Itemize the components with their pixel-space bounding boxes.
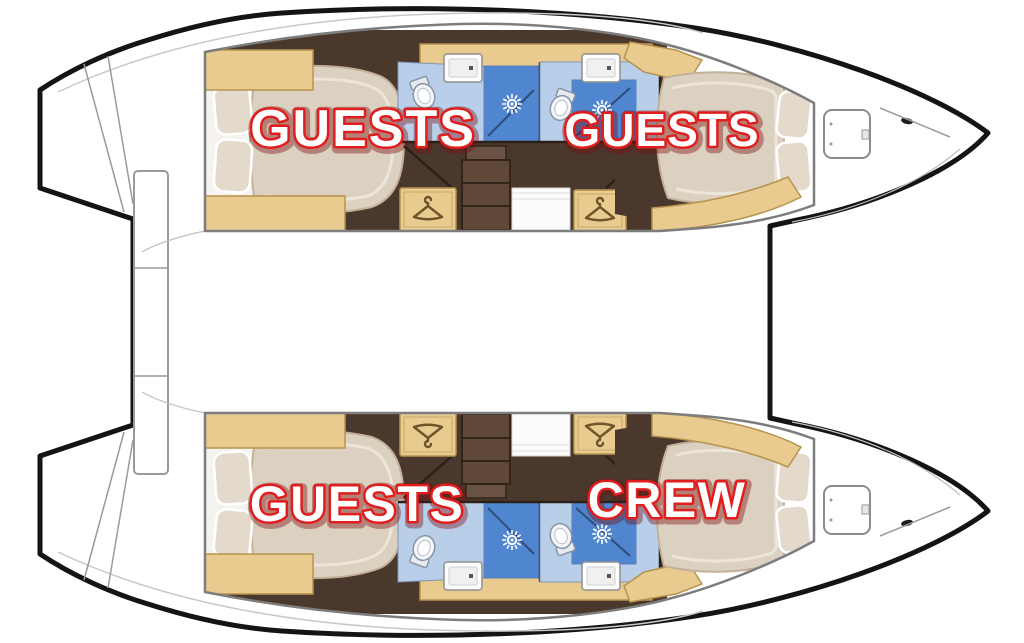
catamaran-floor-plan: GUESTS GUESTS GUESTS GUESTS GUESTS GUEST…: [0, 0, 1024, 643]
floor-plan-canvas: GUESTS GUESTS GUESTS GUESTS GUESTS GUEST…: [0, 0, 1024, 643]
stern-crossbeam: [134, 171, 168, 474]
label-port-aft-cabin: GUESTS: [250, 100, 476, 158]
label-port-forward-cabin: GUESTS: [564, 104, 759, 156]
label-starboard-aft-cabin: GUESTS: [250, 476, 465, 532]
label-starboard-forward-cabin: CREW: [588, 472, 747, 528]
